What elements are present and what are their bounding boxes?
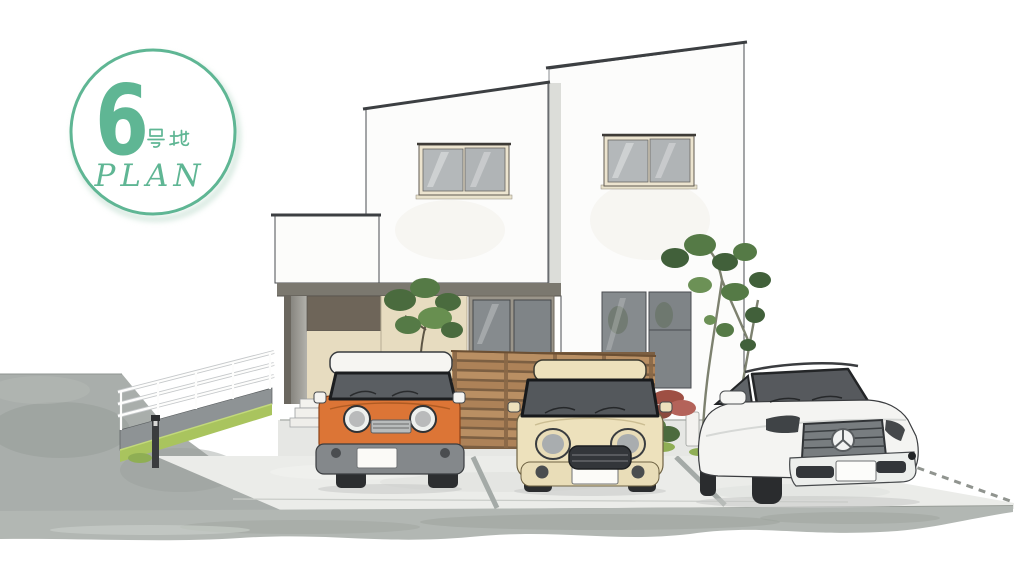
car-cream (508, 360, 672, 496)
license-plate (357, 448, 397, 468)
badge-plan-label: PLAN (94, 158, 206, 194)
block-junction-shade (549, 83, 561, 296)
license-plate (836, 461, 876, 481)
side-mirror (508, 402, 520, 412)
fog-light (331, 448, 341, 458)
bumper-intake (796, 466, 834, 478)
fog-light (536, 466, 549, 479)
wall-wash (395, 200, 505, 260)
entrance-porch (275, 216, 379, 283)
car-roof (534, 360, 646, 381)
curb-wash (420, 514, 780, 530)
car-roof-white (330, 352, 452, 374)
windshield (752, 369, 868, 404)
headlight (766, 415, 800, 433)
grille (371, 420, 411, 433)
curb-wash (50, 525, 250, 535)
headlight-inner (542, 434, 564, 454)
headlight-inner (349, 411, 365, 427)
bumper-intake (876, 461, 906, 473)
accent-panel (307, 296, 381, 331)
fog-light (440, 448, 450, 458)
second-floor-window-left (416, 144, 512, 199)
side-mirror (660, 402, 672, 412)
sensor-dot (908, 452, 916, 460)
side-mirror (720, 391, 746, 404)
car-shadow (696, 496, 920, 508)
planter-pot (686, 412, 699, 446)
grass-tuft (128, 453, 152, 463)
plot-badge: 6 PLAN (71, 50, 238, 219)
car-orange (314, 352, 465, 494)
fog-light (632, 466, 645, 479)
second-floor-window-right (601, 135, 697, 189)
fence-post (504, 353, 508, 448)
grille (569, 446, 631, 469)
side-mirror (453, 392, 465, 403)
side-mirror (314, 392, 326, 403)
curb-wash (760, 512, 940, 524)
windshield (522, 380, 658, 416)
entry-recess-shadow (284, 296, 291, 404)
bollard-light (151, 415, 160, 468)
headlight-inner (415, 411, 431, 427)
plan-rendering: 6 PLAN (0, 0, 1024, 563)
